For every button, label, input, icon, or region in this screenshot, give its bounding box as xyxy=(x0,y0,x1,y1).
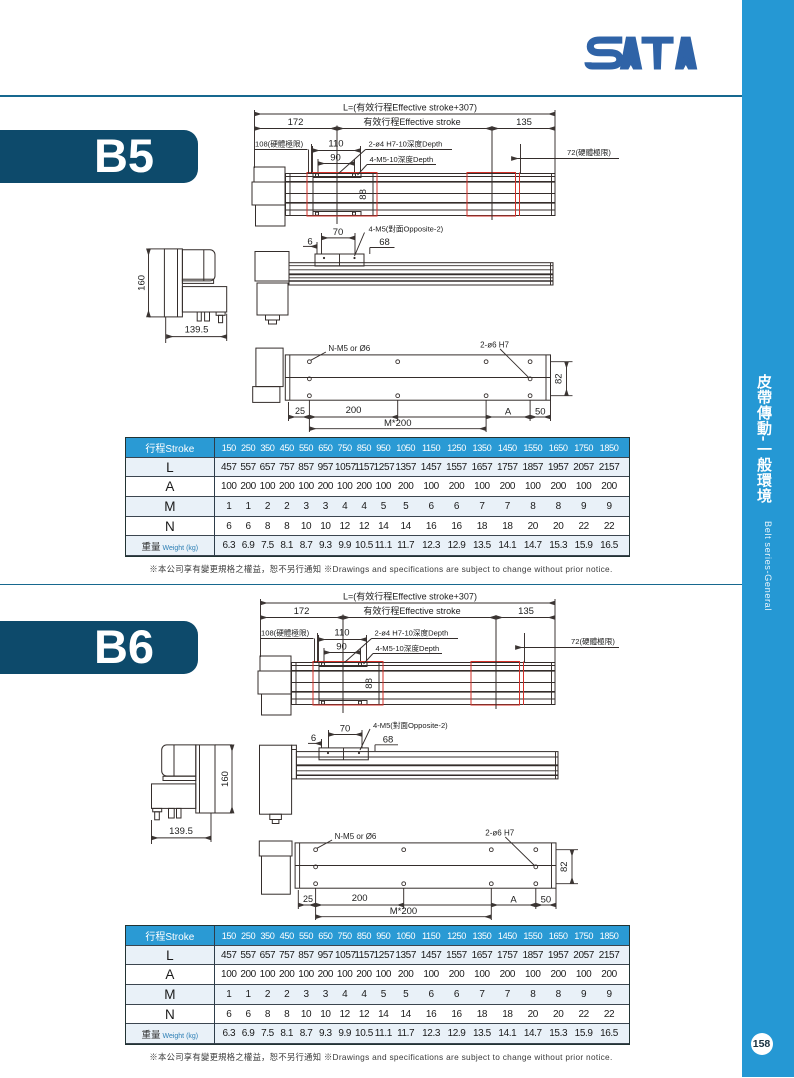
svg-text:160: 160 xyxy=(220,771,231,787)
svg-text:50: 50 xyxy=(535,407,546,418)
svg-text:2-ø4 H7-10深度Depth: 2-ø4 H7-10深度Depth xyxy=(369,139,443,149)
svg-text:160: 160 xyxy=(137,275,148,291)
svg-text:4-M5(對面Opposite-2): 4-M5(對面Opposite-2) xyxy=(373,720,448,730)
svg-text:A: A xyxy=(505,407,512,418)
svg-text:172: 172 xyxy=(288,117,304,128)
svg-text:2-ø4 H7-10深度Depth: 2-ø4 H7-10深度Depth xyxy=(375,628,449,638)
svg-text:135: 135 xyxy=(518,606,534,617)
svg-text:有效行程Effective stroke: 有效行程Effective stroke xyxy=(363,116,460,127)
svg-text:2-ø6 H7: 2-ø6 H7 xyxy=(480,341,509,350)
svg-text:50: 50 xyxy=(541,895,552,906)
svg-text:25: 25 xyxy=(295,406,305,416)
svg-text:72(硬體極限): 72(硬體極限) xyxy=(571,636,615,646)
svg-text:M*200: M*200 xyxy=(384,418,411,429)
svg-text:200: 200 xyxy=(352,893,368,904)
svg-text:135: 135 xyxy=(516,117,532,128)
svg-text:139.5: 139.5 xyxy=(185,325,209,336)
svg-text:4-M5-10深度Depth: 4-M5-10深度Depth xyxy=(370,154,434,164)
svg-text:6: 6 xyxy=(311,733,316,744)
svg-text:N-M5 or Ø6: N-M5 or Ø6 xyxy=(335,832,377,841)
svg-text:6: 6 xyxy=(307,237,312,248)
svg-text:4-M5(對面Opposite-2): 4-M5(對面Opposite-2) xyxy=(369,224,444,234)
svg-text:72(硬體極限): 72(硬體極限) xyxy=(567,147,611,157)
svg-text:N-M5 or Ø6: N-M5 or Ø6 xyxy=(328,344,370,353)
svg-text:L=(有效行程Effective stroke+307): L=(有效行程Effective stroke+307) xyxy=(343,102,477,113)
svg-text:108(硬體極限): 108(硬體極限) xyxy=(261,628,310,638)
svg-text:A: A xyxy=(510,895,517,906)
svg-text:172: 172 xyxy=(294,606,310,617)
svg-text:L=(有效行程Effective stroke+307): L=(有效行程Effective stroke+307) xyxy=(343,591,477,602)
svg-text:有效行程Effective stroke: 有效行程Effective stroke xyxy=(363,605,460,616)
svg-text:90: 90 xyxy=(330,153,341,164)
svg-text:88: 88 xyxy=(358,189,369,200)
svg-text:90: 90 xyxy=(336,642,347,653)
svg-text:108(硬體極限): 108(硬體極限) xyxy=(255,139,304,149)
svg-text:139.5: 139.5 xyxy=(169,826,193,837)
svg-text:200: 200 xyxy=(346,405,362,416)
svg-text:70: 70 xyxy=(333,227,344,238)
svg-text:M*200: M*200 xyxy=(390,906,417,917)
svg-text:110: 110 xyxy=(328,139,343,150)
svg-text:2-ø6 H7: 2-ø6 H7 xyxy=(485,829,514,838)
svg-text:88: 88 xyxy=(364,678,375,689)
svg-text:82: 82 xyxy=(559,861,570,872)
svg-text:110: 110 xyxy=(334,628,349,639)
svg-text:82: 82 xyxy=(554,373,565,384)
svg-text:25: 25 xyxy=(303,894,313,904)
svg-text:4-M5-10深度Depth: 4-M5-10深度Depth xyxy=(376,643,440,653)
svg-text:70: 70 xyxy=(340,724,351,735)
svg-text:68: 68 xyxy=(379,237,390,248)
svg-text:68: 68 xyxy=(383,735,394,746)
